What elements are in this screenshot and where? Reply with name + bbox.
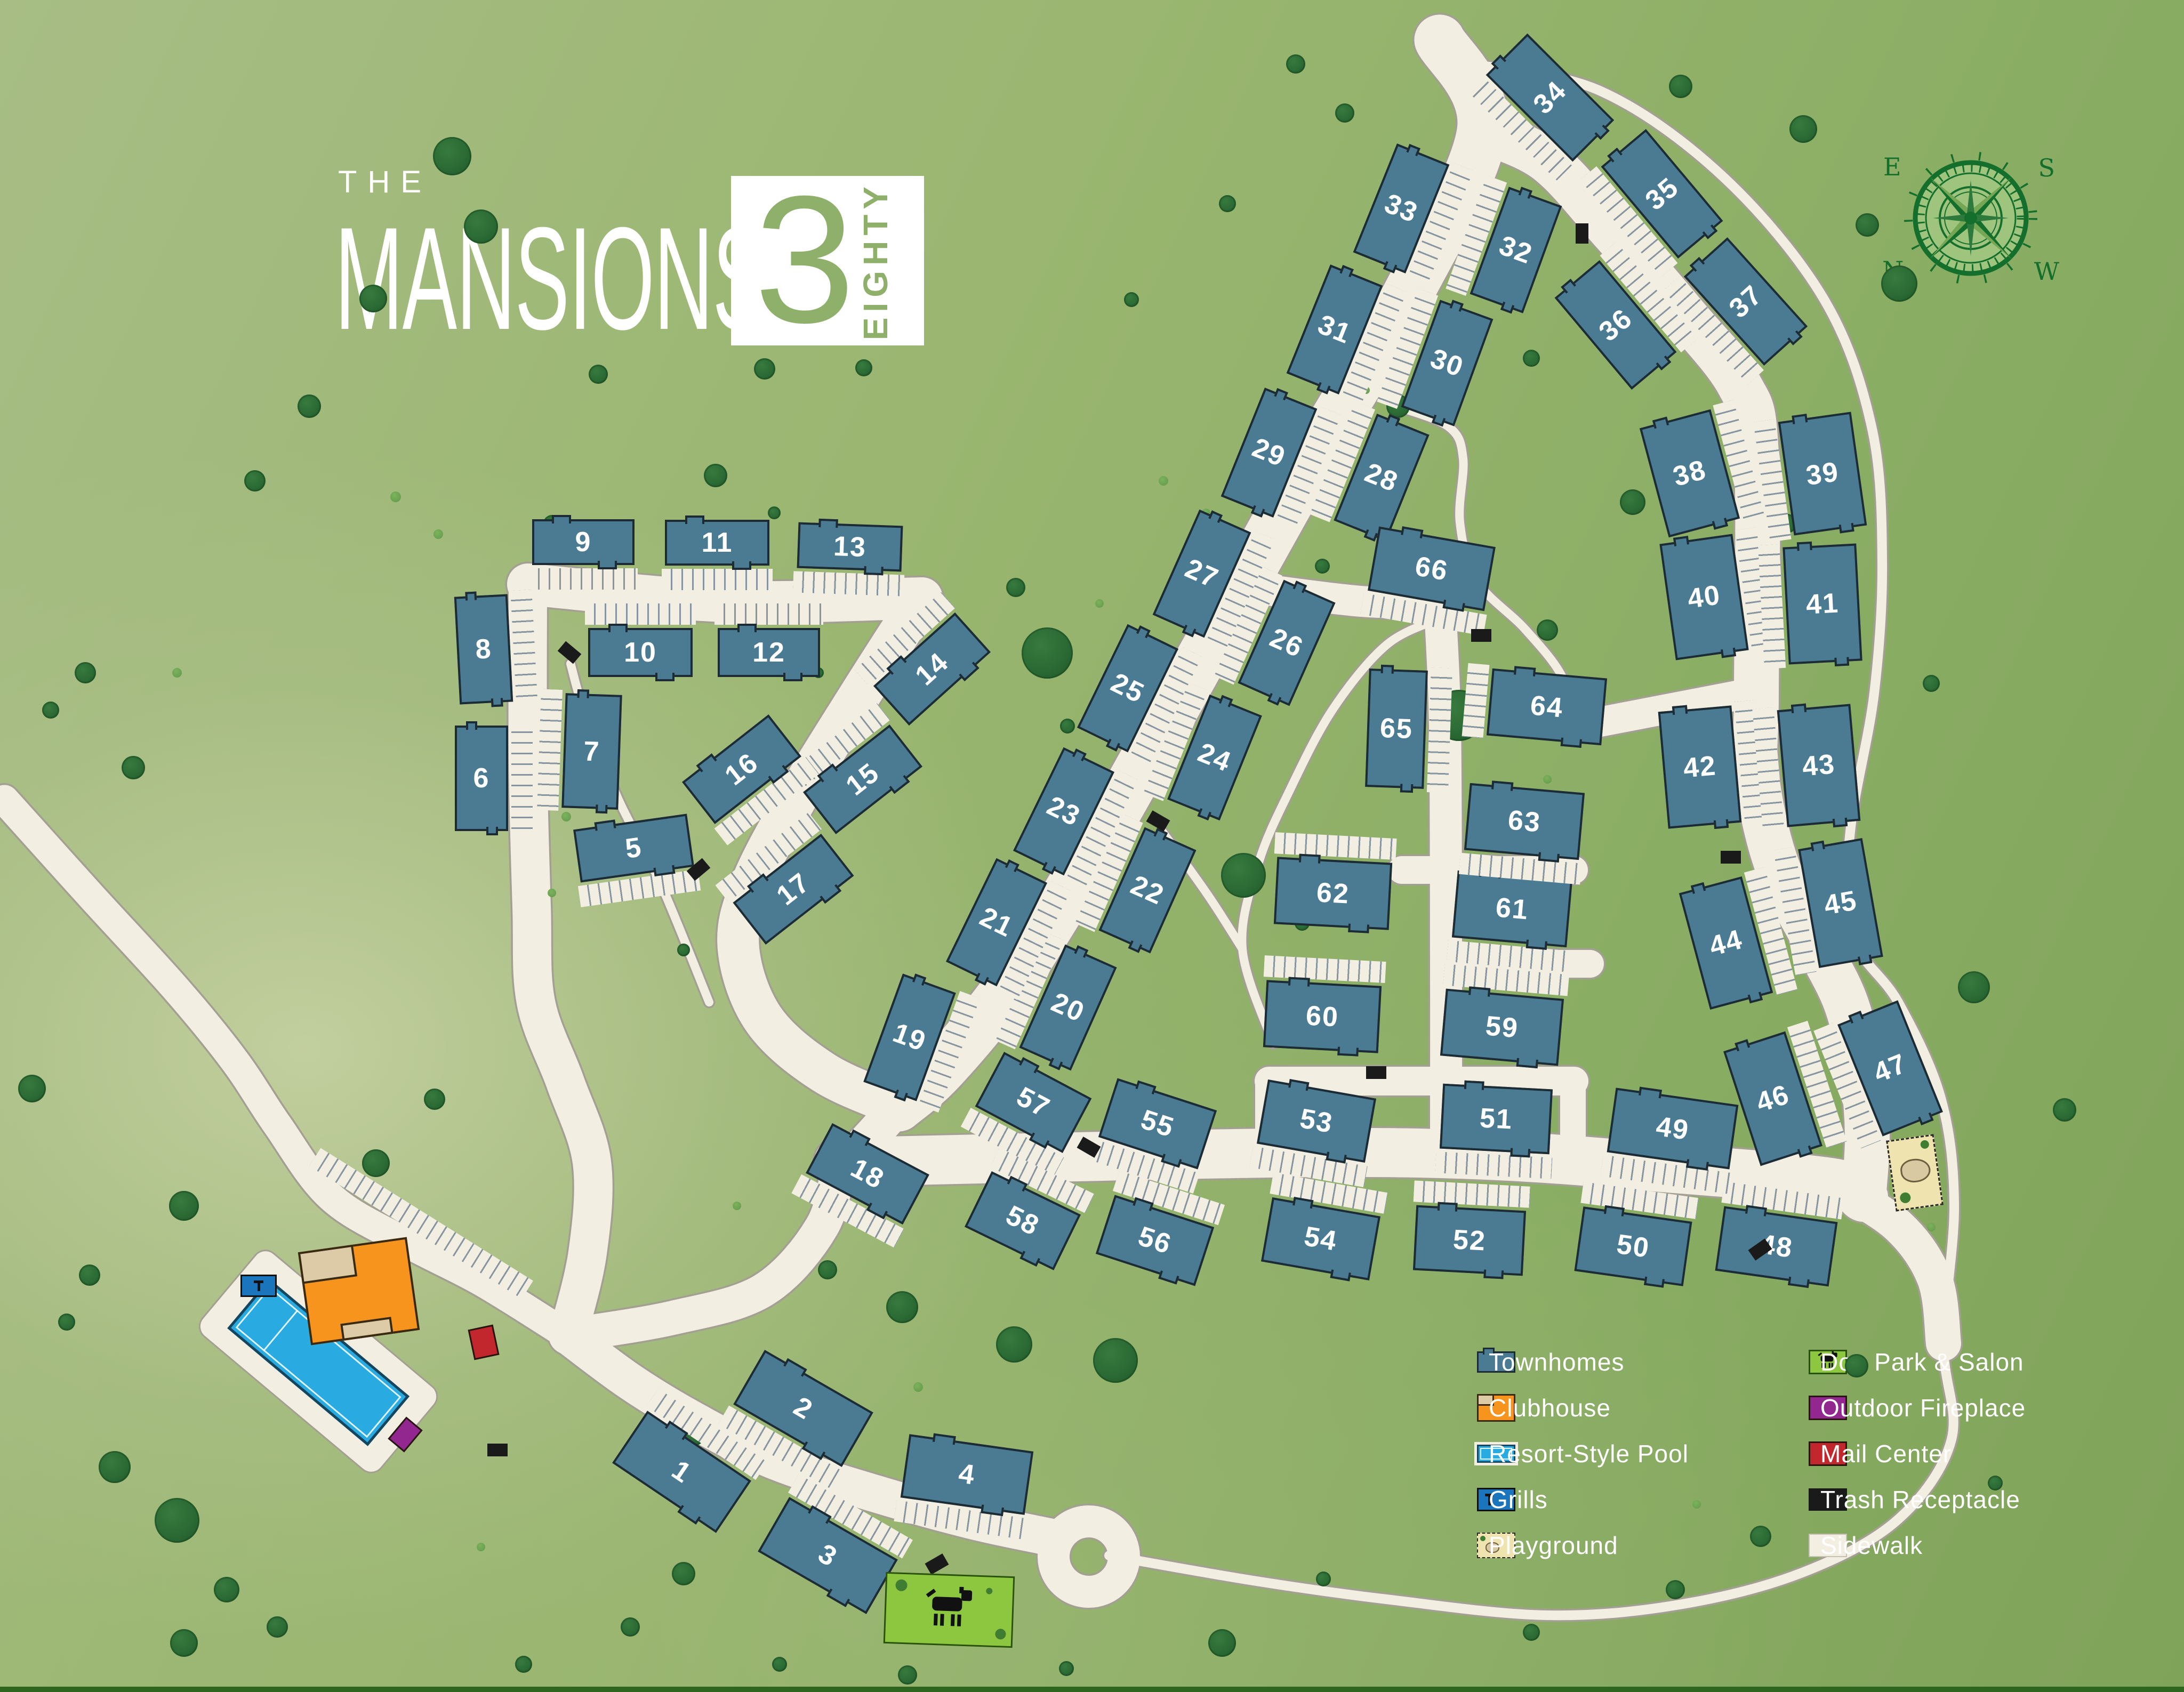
building-8: 8 — [454, 594, 513, 705]
bush — [172, 668, 182, 678]
tree — [1669, 75, 1692, 98]
building-number: 59 — [1440, 989, 1564, 1066]
tree — [1537, 619, 1558, 641]
building-64: 64 — [1487, 668, 1607, 745]
dog-part — [934, 1614, 938, 1625]
tree — [99, 1451, 131, 1483]
tree — [1881, 265, 1917, 302]
building-number: 64 — [1487, 668, 1607, 745]
legend-label: Resort-Style Pool — [1489, 1439, 1689, 1468]
tree — [424, 1089, 445, 1110]
parking-comb — [529, 568, 638, 590]
tree — [1093, 1338, 1138, 1383]
community-logo: THE MANSIONS 3 EIGHTY — [331, 155, 938, 357]
tree — [1219, 195, 1236, 212]
parking-comb — [1427, 667, 1452, 793]
logo-the: THE — [338, 164, 432, 200]
parking-comb — [537, 689, 563, 810]
building-number: 65 — [1365, 668, 1428, 789]
tree — [464, 210, 498, 244]
building-number: 63 — [1464, 783, 1585, 860]
tree — [359, 285, 387, 312]
building-number: 7 — [561, 693, 622, 810]
dog-icon — [923, 1588, 976, 1629]
parking-comb — [511, 722, 533, 834]
trash-receptacle — [1721, 851, 1741, 864]
compass-rose: E S N W — [1901, 147, 2040, 289]
building-number: 6 — [455, 726, 508, 831]
tree — [1988, 1476, 2003, 1490]
tree — [122, 756, 145, 779]
trash-receptacle — [1366, 1066, 1386, 1079]
tree — [58, 1314, 75, 1331]
building-11: 11 — [665, 520, 769, 566]
parking-comb — [714, 603, 823, 625]
tree — [589, 365, 608, 384]
tree — [75, 662, 96, 683]
bush — [913, 1382, 923, 1392]
dog-park-bush — [995, 1629, 1006, 1640]
tree — [996, 1326, 1032, 1363]
dog-part — [926, 1589, 936, 1597]
tree — [754, 358, 775, 380]
tree — [1316, 1572, 1331, 1586]
tree — [1856, 213, 1879, 237]
tree — [169, 1191, 199, 1221]
tree — [1124, 292, 1139, 307]
tree — [515, 1656, 532, 1673]
tree — [155, 1498, 199, 1543]
tree — [433, 137, 471, 175]
tree — [267, 1616, 288, 1638]
bush — [548, 889, 556, 897]
map-bottom-border — [0, 1687, 2184, 1692]
dog-park — [884, 1572, 1015, 1648]
tree — [1315, 559, 1330, 574]
grills — [240, 1275, 277, 1297]
logo-eighty: EIGHTY — [856, 181, 895, 340]
building-52: 52 — [1413, 1205, 1526, 1276]
tree — [1523, 350, 1540, 367]
tree — [855, 359, 872, 376]
bush — [1927, 1223, 1936, 1231]
legend-item-sidewalk: Sidewalk — [1809, 1522, 2139, 1568]
tree — [214, 1577, 239, 1602]
tree — [1666, 1580, 1685, 1599]
building-59: 59 — [1440, 989, 1564, 1066]
building-51: 51 — [1440, 1084, 1553, 1155]
tree — [1335, 103, 1354, 123]
bush — [433, 529, 443, 539]
tree — [672, 1562, 695, 1585]
legend-item-grills: Grills — [1477, 1477, 1808, 1522]
legend-label: Playground — [1489, 1531, 1618, 1560]
tree — [298, 394, 321, 418]
tree — [1923, 675, 1940, 692]
playground-bush — [1920, 1140, 1930, 1149]
legend-label: Grills — [1489, 1485, 1548, 1514]
building-60: 60 — [1263, 980, 1382, 1053]
bush — [477, 1543, 485, 1551]
building-number: 12 — [718, 628, 820, 677]
tree — [1022, 627, 1073, 679]
logo-mansions: MANSIONS — [335, 206, 766, 352]
compass-graphic — [1901, 147, 2040, 289]
building-number: 8 — [454, 594, 513, 705]
tree — [898, 1665, 917, 1685]
legend-label: Townhomes — [1489, 1348, 1624, 1376]
building-65: 65 — [1365, 668, 1428, 789]
bush — [733, 1202, 741, 1210]
tree — [818, 1260, 837, 1279]
tree — [1750, 1526, 1771, 1547]
legend-item-pool: Resort-Style Pool — [1477, 1431, 1808, 1477]
bush — [1543, 775, 1552, 784]
legend-item-townhomes: Townhomes — [1477, 1339, 1808, 1385]
tree — [1060, 719, 1075, 734]
building-number: 9 — [532, 519, 635, 565]
dog-park-bush — [895, 1579, 908, 1591]
tree — [768, 506, 781, 519]
tree — [2053, 1098, 2076, 1122]
tree — [362, 1149, 390, 1177]
building-number: 52 — [1413, 1205, 1526, 1276]
tree — [18, 1075, 46, 1102]
bush — [1159, 476, 1168, 486]
building-63: 63 — [1464, 783, 1585, 860]
dog-part — [932, 1597, 962, 1612]
legend-label: Outdoor Fireplace — [1820, 1393, 2026, 1422]
tree — [244, 470, 266, 492]
building-number: 41 — [1782, 544, 1862, 665]
dog-part — [951, 1614, 955, 1626]
parking-comb — [585, 603, 696, 625]
parking-comb — [793, 571, 904, 596]
building-42: 42 — [1658, 705, 1742, 828]
building-9: 9 — [532, 519, 635, 565]
dog-part — [957, 1615, 961, 1626]
building-number: 60 — [1263, 980, 1382, 1053]
building-7: 7 — [561, 693, 622, 810]
building-39: 39 — [1778, 412, 1867, 535]
building-number: 10 — [588, 628, 693, 677]
legend-item-trash: Trash Receptacle — [1809, 1477, 2139, 1522]
bush — [390, 492, 401, 502]
clubhouse — [298, 1237, 420, 1345]
legend-item-clubhouse: Clubhouse — [1477, 1385, 1808, 1431]
building-41: 41 — [1782, 544, 1862, 665]
tree — [170, 1629, 198, 1657]
dog-part — [940, 1614, 944, 1625]
site-map: THE MANSIONS 3 EIGHTY — [0, 0, 2184, 1692]
cul-de-sac — [1054, 1521, 1124, 1592]
bush — [1095, 599, 1104, 608]
playground — [1886, 1134, 1944, 1211]
building-10: 10 — [588, 628, 693, 677]
tree — [1523, 1624, 1540, 1641]
building-number: 51 — [1440, 1084, 1553, 1155]
tree — [1789, 115, 1817, 143]
bush — [1692, 1500, 1701, 1509]
legend-label: Trash Receptacle — [1820, 1485, 2020, 1514]
building-number: 11 — [665, 520, 769, 566]
tree — [704, 464, 727, 487]
tree — [886, 1291, 918, 1323]
building-13: 13 — [797, 522, 903, 572]
building-number: 39 — [1778, 412, 1867, 535]
compass-east: E — [1883, 152, 1901, 181]
dog-park-bush — [986, 1588, 992, 1594]
tree — [1958, 971, 1990, 1003]
legend-label: Clubhouse — [1489, 1393, 1611, 1422]
tree — [1006, 578, 1025, 597]
building-number: 13 — [797, 522, 903, 572]
logo-box: 3 EIGHTY — [731, 176, 924, 345]
tree — [677, 944, 690, 956]
compass-west: W — [2034, 257, 2059, 286]
tree — [79, 1264, 100, 1286]
building-number: 62 — [1274, 857, 1392, 930]
building-12: 12 — [718, 628, 820, 677]
legend-item-mail: Mail Center — [1809, 1431, 2139, 1477]
building-6: 6 — [455, 726, 508, 831]
legend-label: Sidewalk — [1820, 1531, 1923, 1560]
tree — [1620, 489, 1645, 515]
tree — [772, 1657, 787, 1672]
legend-label: Mail Center — [1820, 1439, 1952, 1468]
dog-part — [959, 1587, 963, 1593]
tree — [1059, 1661, 1074, 1676]
trash-receptacle — [487, 1444, 508, 1456]
trash-receptacle — [1471, 629, 1491, 642]
building-43: 43 — [1777, 704, 1861, 827]
grill-icon — [254, 1280, 263, 1291]
tree — [1845, 1354, 1868, 1377]
clubhouse-annex — [298, 1245, 357, 1284]
parking-comb — [662, 569, 773, 590]
bush — [561, 812, 571, 821]
building-62: 62 — [1274, 857, 1392, 930]
legend-item-fireplace: Outdoor Fireplace — [1809, 1385, 2139, 1431]
tree — [42, 702, 59, 719]
building-number: 43 — [1777, 704, 1861, 827]
tree — [1208, 1629, 1236, 1657]
logo-numeral: 3 — [738, 156, 871, 364]
compass-south: S — [2038, 154, 2055, 182]
tree — [1286, 54, 1305, 74]
trash-receptacle — [1576, 223, 1588, 244]
building-number: 42 — [1658, 705, 1742, 828]
tree — [621, 1617, 640, 1637]
tree — [1221, 853, 1266, 898]
